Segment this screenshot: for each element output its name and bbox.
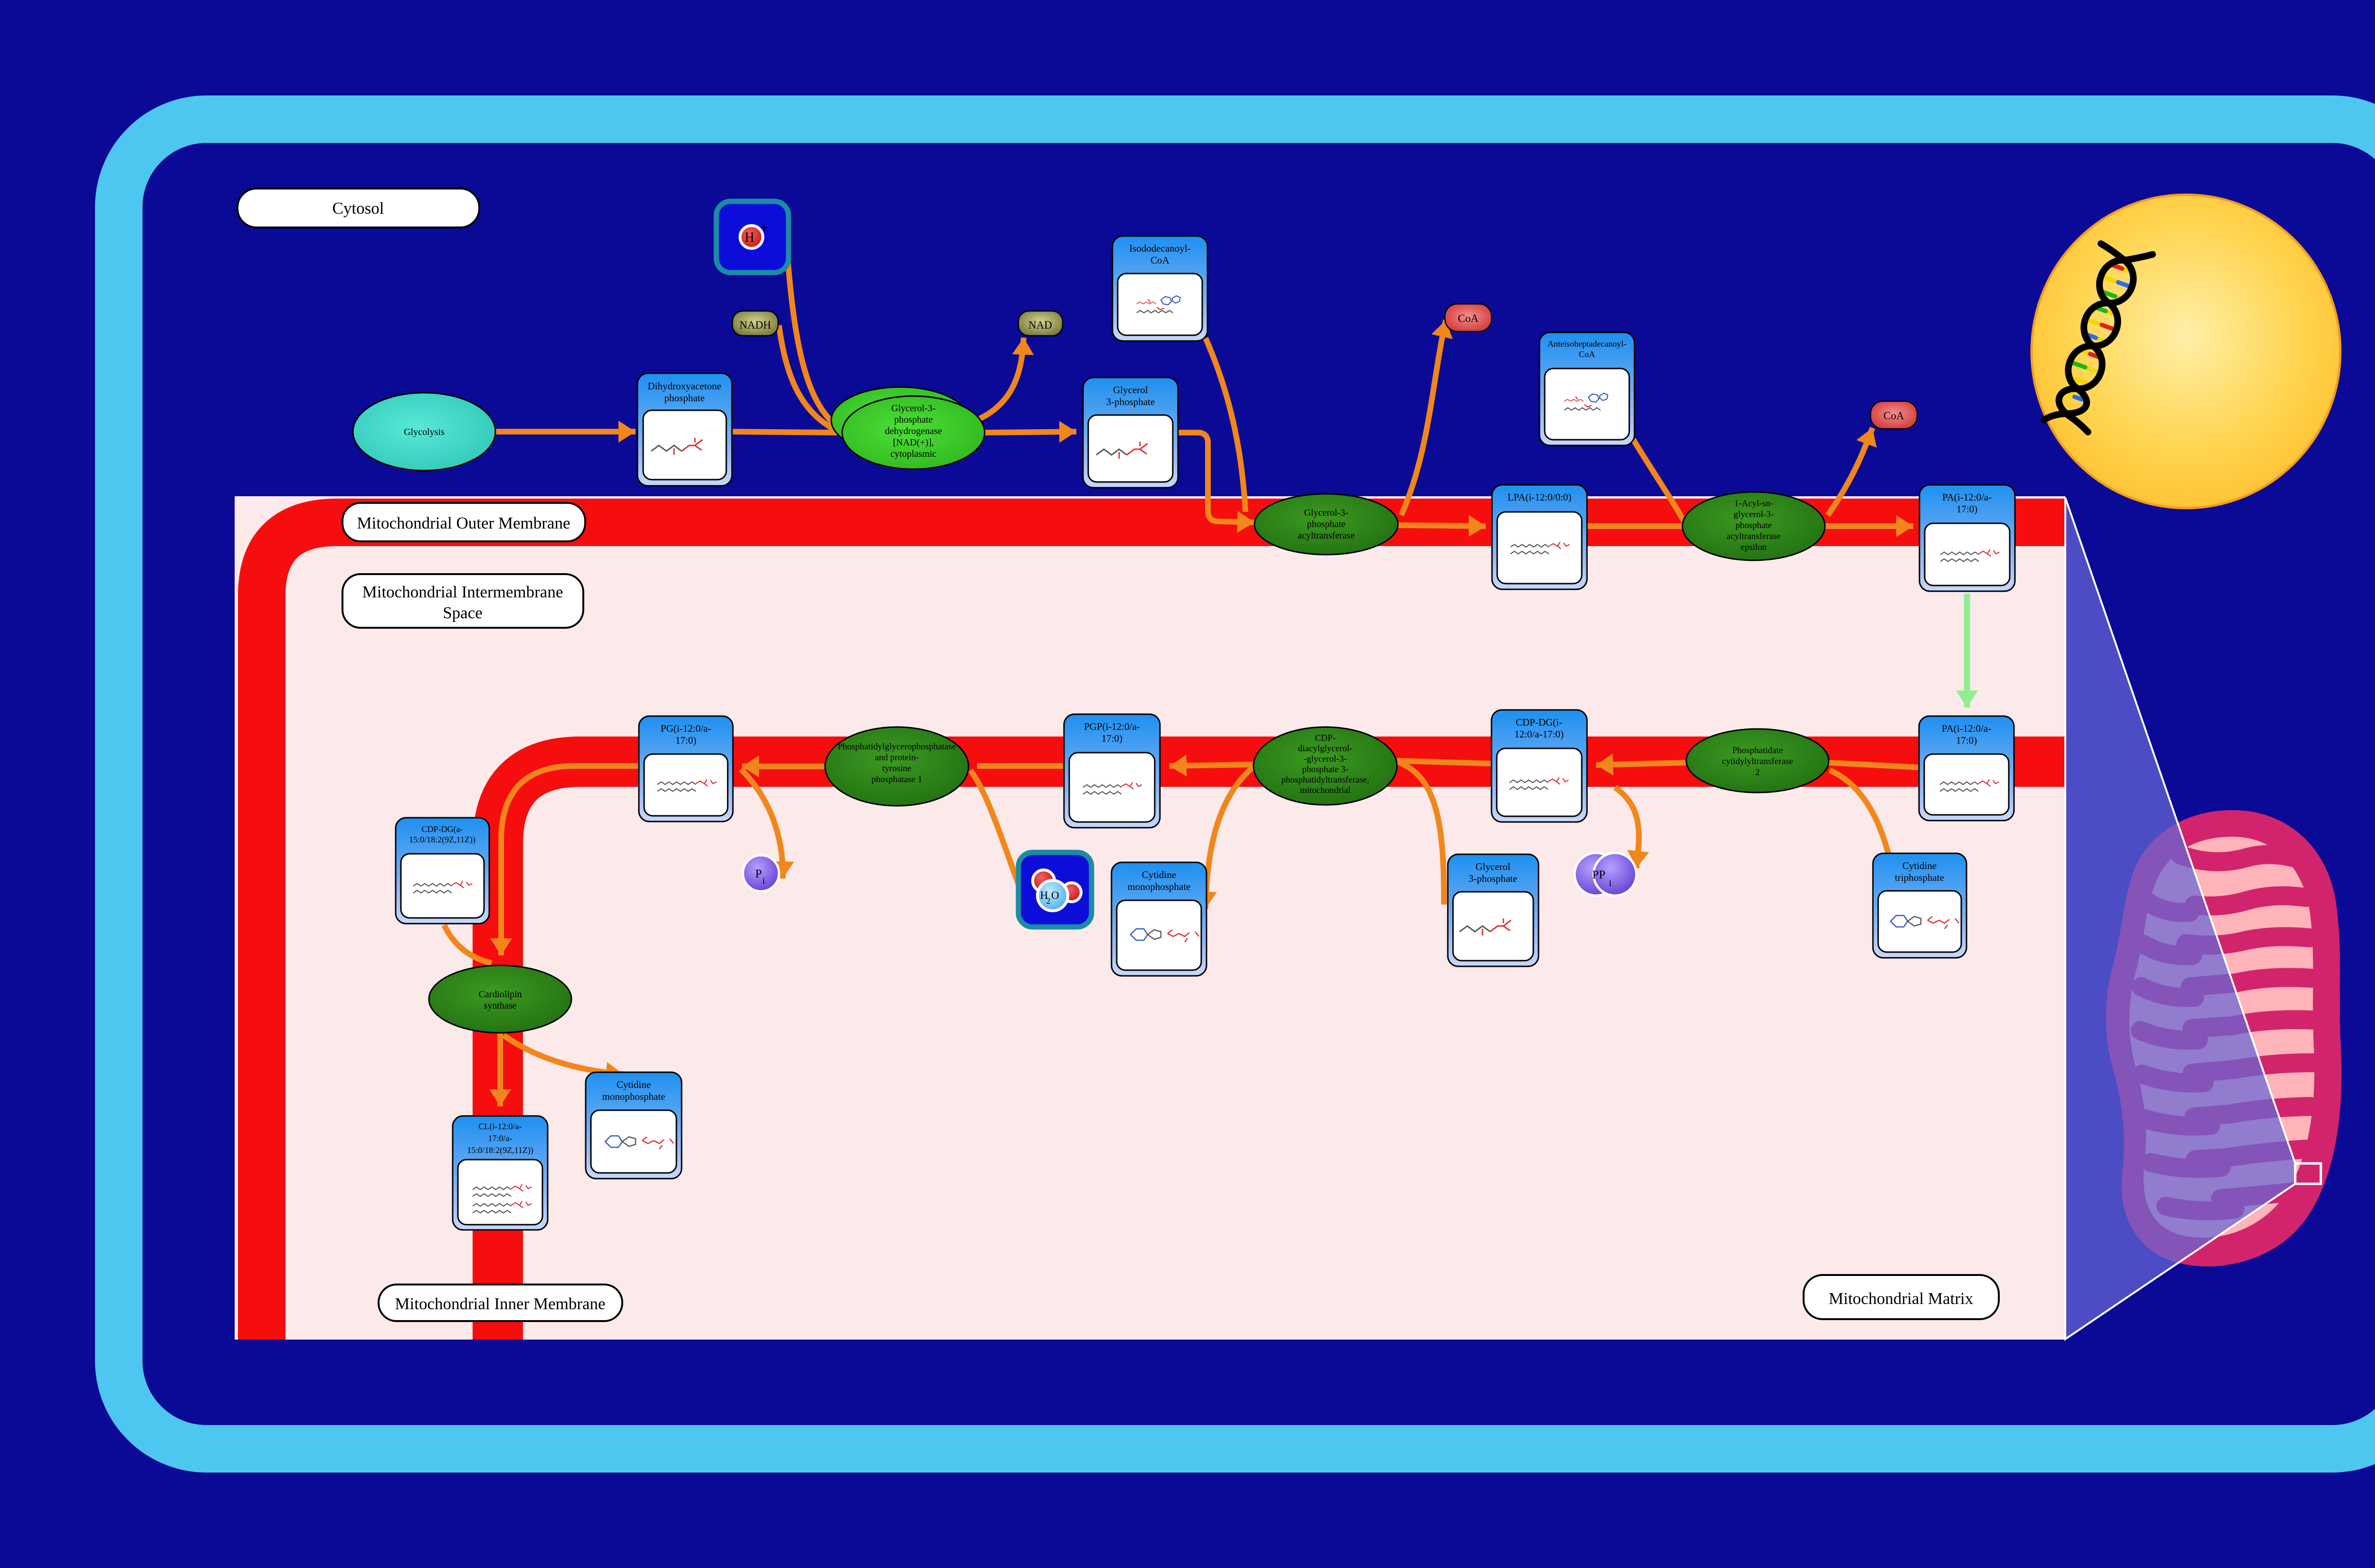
svg-text:CDP-DG(i-12:0/a-17:0): CDP-DG(i-12:0/a-17:0)	[1514, 717, 1564, 740]
svg-text:Cytosol: Cytosol	[332, 199, 384, 217]
svg-text:PP: PP	[1592, 869, 1605, 881]
svg-text:LPA(i-12:0/0:0): LPA(i-12:0/0:0)	[1508, 491, 1572, 503]
svg-text:P: P	[755, 868, 762, 880]
svg-text:Glycerol-3-phosphatedehydrogen: Glycerol-3-phosphatedehydrogenase[NAD(+)…	[885, 403, 942, 459]
svg-text:i: i	[1609, 878, 1612, 888]
svg-text:Mitochondrial Outer Membrane: Mitochondrial Outer Membrane	[357, 514, 570, 532]
svg-text:Mitochondrial Matrix: Mitochondrial Matrix	[1829, 1289, 1974, 1308]
svg-text:O: O	[1051, 889, 1059, 901]
svg-text:Mitochondrial Inner Membrane: Mitochondrial Inner Membrane	[395, 1294, 605, 1313]
svg-text:2: 2	[1046, 896, 1051, 906]
svg-text:NAD: NAD	[1028, 319, 1052, 331]
svg-text:CoA: CoA	[1883, 410, 1904, 422]
svg-text:H: H	[745, 230, 754, 245]
svg-text:Glycolysis: Glycolysis	[404, 427, 445, 437]
svg-text:+: +	[760, 220, 768, 236]
svg-text:CoA: CoA	[1458, 312, 1479, 324]
svg-text:i: i	[762, 876, 765, 886]
svg-text:Glycerol3-phosphate: Glycerol3-phosphate	[1469, 861, 1518, 884]
svg-text:Glycerol3-phosphate: Glycerol3-phosphate	[1106, 384, 1155, 407]
svg-text:NADH: NADH	[740, 319, 771, 331]
